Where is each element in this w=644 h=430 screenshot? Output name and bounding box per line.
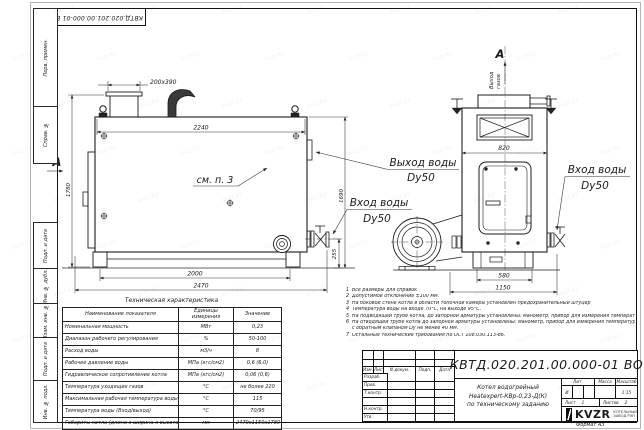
col-podp: Подп. <box>415 366 434 373</box>
spec-cell: Гидравлическое сопротивление котла <box>63 370 179 382</box>
scale-label: Масштаб <box>615 378 637 385</box>
spec-row: Диапазон рабочего регулирования%50-100 <box>63 334 282 346</box>
row-nkontr: Н.контр. <box>363 405 387 413</box>
top-doc-number: КВТД.020.201.00.000-01 ВО <box>51 14 143 21</box>
frame-field-label: Инв. № дубл. <box>43 269 49 304</box>
spec-cell: 8 <box>234 346 282 358</box>
spec-row: Максимальная рабочая температура воды°С1… <box>63 394 282 406</box>
spec-cell: Температура воды (Вход/выход) <box>63 406 179 418</box>
spec-row: Рабочее давление водыМПа (кгс/см2)0,6 (6… <box>63 358 282 370</box>
lit-value: И <box>561 385 572 398</box>
inlet-water-dy: Dy50 <box>363 213 391 225</box>
title-doc-number: КВТД.020.201.00.000-01 ВО <box>454 351 638 378</box>
lit-label: Лит. <box>561 378 594 385</box>
format-label: Формат А3 <box>576 422 604 428</box>
mass-value <box>594 385 615 398</box>
dim-front-width: 820 <box>498 145 510 152</box>
dim-base-outer: 2470 <box>193 283 208 290</box>
frame-field-label: Подп. и дата <box>43 229 49 263</box>
row-blank <box>363 397 387 405</box>
spec-row: Габариты котла (длина х ширина х высота)… <box>63 418 282 430</box>
spec-cell: МПа (кгс/см2) <box>179 358 234 370</box>
frame-field-vzam-inv: Взам. инв. № <box>33 303 58 339</box>
spec-cell: не более 220 <box>234 382 282 394</box>
dim-height-right: 1690 <box>339 189 345 203</box>
spec-cell: °С <box>179 406 234 418</box>
revision-rows <box>363 351 454 366</box>
spec-table-title: Техническая характеристика <box>62 297 281 307</box>
lit-cell-2 <box>572 385 583 398</box>
kvzr-logo-text: KVZR <box>575 408 610 421</box>
spec-cell: 0,6 (6,0) <box>234 358 282 370</box>
sheet-label: Лист <box>565 400 576 405</box>
side-inlet-valve <box>305 226 340 247</box>
gas-outlet-line2: газов <box>496 74 502 89</box>
inlet-water-label: Вход воды <box>350 197 409 209</box>
col-izm: Изм. <box>363 366 373 373</box>
spec-row: Номинальная мощностьМВт0,23 <box>63 322 282 334</box>
spec-cell: 115 <box>234 394 282 406</box>
frame-field-perv-primen: Перв. примен. <box>33 8 58 108</box>
spec-table-block: Техническая характеристика Наименование … <box>62 297 281 430</box>
top-valves <box>451 99 557 114</box>
frame-field-podp-data-1: Подп. и дата <box>33 222 58 270</box>
kvzr-logo-subtitle: КОТЕЛЬНЫЙ ЗАВОД РЭП <box>613 410 637 418</box>
frame-field-label: Подп. и дата <box>43 342 49 376</box>
col-list: Лист <box>373 366 383 373</box>
dim-base-inner: 2000 <box>187 271 202 278</box>
dim-top-width: 2240 <box>193 125 208 132</box>
sheets-cell: Листов 2 <box>599 398 637 406</box>
note-text: Остальные технические требования по ОСТ … <box>352 333 635 339</box>
logo-subtitle-line2: ЗАВОД РЭП <box>613 414 637 418</box>
spec-cell: Температура уходящих газов <box>63 382 179 394</box>
inlet-water-right-dy: Dy50 <box>581 180 609 192</box>
scale-value: 1:15 <box>615 385 637 398</box>
notes-block: 1Все размеры для справок 2Допустимое отк… <box>343 288 635 339</box>
spec-row: Температура воды (Вход/выход)°С70/95 <box>63 406 282 418</box>
spec-cell: % <box>179 334 234 346</box>
spec-cell: 0,06 (0,6) <box>234 370 282 382</box>
spec-table: Наименование показателя Единицы измерени… <box>62 307 282 430</box>
dim-nozzle: 200х390 <box>150 79 177 86</box>
sheet-cell: Лист 1 <box>561 398 599 406</box>
logo-cell: KVZR КОТЕЛЬНЫЙ ЗАВОД РЭП <box>561 406 637 421</box>
spec-row: Гидравлическое сопротивление котлаМПа (к… <box>63 370 282 382</box>
spec-cell: Расход воды <box>63 346 179 358</box>
callout-labels: Выход воды Dy50 Вход воды Dy50 Вход воды… <box>47 47 630 234</box>
note-line: 7Остальные технические требования по ОСТ… <box>343 333 635 339</box>
inlet-water-right-label: Вход воды <box>568 164 627 176</box>
frame-field-label: Взам. инв. № <box>43 304 49 339</box>
frame-field-label: Справ. № <box>43 122 49 147</box>
product-name-line2: Heatexpert-КВр-0,23-Д(К) <box>455 393 561 402</box>
frame-field-label: Инв. № подл. <box>43 384 49 419</box>
spec-cell: МПа (кгс/см2) <box>179 370 234 382</box>
outlet-water-label: Выход воды <box>390 157 457 169</box>
see-note-label: см. п. 3 <box>197 175 234 186</box>
kvzr-logo-icon <box>566 408 572 421</box>
spec-cell: 50-100 <box>234 334 282 346</box>
outlet-water-dy: Dy50 <box>407 172 435 184</box>
spec-cell: Габариты котла (длина х ширина х высота) <box>63 418 179 430</box>
blower-fan <box>391 215 462 270</box>
frame-field-inv-dubl: Инв. № дубл. <box>33 268 58 305</box>
spec-cell: Номинальная мощность <box>63 322 179 334</box>
note-number: 7 <box>343 333 352 339</box>
spec-col-value: Значение <box>234 308 282 322</box>
row-prov: Пров. <box>363 381 387 389</box>
dim-inlet-height: 255 <box>332 248 338 259</box>
drawing-sheet: 200х390 2240 1780 1690 2000 2470 255 820… <box>0 0 644 430</box>
title-block: Изм. Лист N докум. Подп. Дата Разраб. Пр… <box>362 350 638 422</box>
sheets-value: 2 <box>625 400 628 405</box>
front-inlet-valve <box>547 227 565 247</box>
spec-col-units: Единицы измерения <box>179 308 234 322</box>
product-name-line1: Котел водогрейный <box>455 384 561 393</box>
frame-field-sprav-no: Справ. № <box>33 106 58 164</box>
dim-front-base-inner: 580 <box>498 273 510 280</box>
spec-cell: °С <box>179 382 234 394</box>
spec-row: Температура уходящих газов°Сне более 220 <box>63 382 282 394</box>
spec-cell: МВт <box>179 322 234 334</box>
frame-field-podp-data-2: Подп. и дата <box>33 337 58 382</box>
spec-cell: Максимальная рабочая температура воды <box>63 394 179 406</box>
spec-cell: Диапазон рабочего регулирования <box>63 334 179 346</box>
top-doc-number-box: КВТД.020.201.00.000-01 ВО <box>47 8 146 26</box>
frame-field-inv-podl: Инв. № подл. <box>33 380 58 423</box>
spec-cell: м3/ч <box>179 346 234 358</box>
product-name-line3: по техническому заданию <box>455 401 561 410</box>
frame-field-label: Перв. примен. <box>43 39 49 77</box>
dim-height-left: 1780 <box>66 183 72 197</box>
mass-label: Масса <box>594 378 615 385</box>
gas-outlet-line1: Выход <box>489 71 495 89</box>
spec-cell: 70/95 <box>234 406 282 418</box>
spec-cell: 0,23 <box>234 322 282 334</box>
sheets-label: Листов <box>603 400 619 405</box>
row-razrab: Разраб. <box>363 373 387 381</box>
spec-row: Расход водым3/ч8 <box>63 346 282 358</box>
row-tkontr: Т.контр. <box>363 389 387 397</box>
spec-cell: °С <box>179 394 234 406</box>
spec-cell: 2470х1150х1780 <box>234 418 282 430</box>
col-doc: N докум. <box>383 366 415 373</box>
section-letter-top: А <box>495 47 505 61</box>
row-utv: Утв. <box>363 413 387 421</box>
spec-header-row: Наименование показателя Единицы измерени… <box>63 308 282 322</box>
spec-col-name: Наименование показателя <box>63 308 179 322</box>
product-name: Котел водогрейный Heatexpert-КВр-0,23-Д(… <box>454 378 561 421</box>
spec-cell: мм <box>179 418 234 430</box>
lit-cell-3 <box>583 385 594 398</box>
sheet-value: 1 <box>582 400 585 405</box>
spec-cell: Рабочее давление воды <box>63 358 179 370</box>
